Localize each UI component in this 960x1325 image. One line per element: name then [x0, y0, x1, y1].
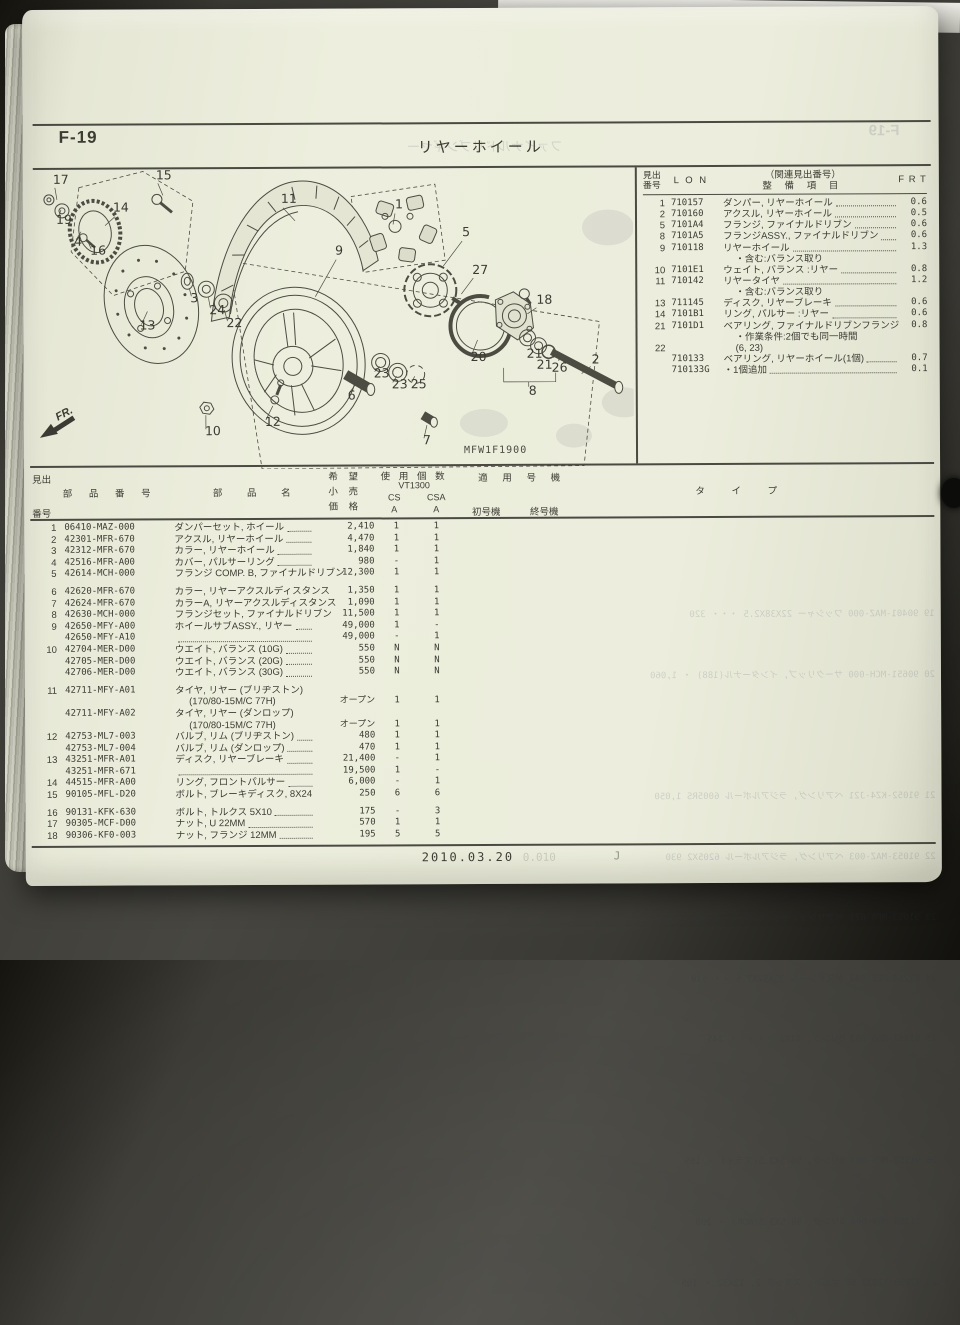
- parts-row-price: 49,000: [315, 620, 375, 632]
- service-row-frt: [900, 331, 928, 342]
- parts-row-price: 2,410: [314, 521, 374, 533]
- parts-header-cs: CS: [374, 492, 414, 502]
- dotted-leader: [279, 719, 312, 729]
- parts-row-no: 17: [34, 819, 58, 831]
- service-row-item: (6, 23): [724, 343, 764, 354]
- parts-row-qty-csa: 1: [418, 556, 454, 568]
- service-row-no: 8: [643, 232, 665, 243]
- service-row-no: [643, 254, 665, 265]
- diagram-callout-number: 6: [348, 388, 356, 403]
- diagram-callout-number: 17: [53, 172, 69, 187]
- service-row-item: ・作業条件:2個でも同一時間: [724, 331, 858, 343]
- parts-row-no: [33, 720, 57, 732]
- parts-row-partno: [57, 697, 175, 709]
- diagram-callout-number: 16: [90, 243, 106, 258]
- bleedthrough-line: [585, 728, 935, 745]
- parts-row-partno: 90105-MFL-D20: [57, 789, 175, 801]
- parts-row-qty-cs: 1: [375, 742, 419, 754]
- service-row-item: ・1個追加: [724, 365, 767, 376]
- service-row-item: アクスル, リヤーホイール: [723, 209, 832, 221]
- bleedthrough-line: [587, 1093, 937, 1110]
- parts-row-price: 19,500: [315, 765, 375, 777]
- dotted-leader: [279, 830, 312, 840]
- parts-row-qty-cs: 1: [375, 608, 419, 620]
- parts-row-price: 4,470: [314, 533, 374, 545]
- parts-row-price: 980: [314, 556, 374, 568]
- service-row-lon: [665, 287, 723, 298]
- parts-row-partno: 42706-MER-D00: [57, 667, 175, 679]
- parts-row-price: [315, 684, 375, 696]
- parts-header-price1: 希 望: [324, 469, 366, 483]
- diagram-callout-number: 3: [190, 290, 198, 305]
- parts-row-partno: 42650-MFY-A00: [57, 621, 175, 633]
- parts-row-qty-csa: 1: [419, 597, 455, 609]
- parts-header-no2: 番号: [32, 506, 62, 520]
- parts-header-no1: 見出: [32, 472, 62, 486]
- parts-row-no: 6: [33, 587, 57, 599]
- service-row-frt: 0.1: [900, 364, 928, 375]
- parts-row-qty-cs: 1: [375, 719, 419, 731]
- service-row-item: リヤータイヤ: [723, 276, 780, 287]
- parts-row-qty-cs: 6: [375, 788, 419, 800]
- diagram-callout-number: 15: [156, 167, 172, 182]
- parts-row-name: バルブ, リム (ブリヂストン): [175, 731, 294, 743]
- diagram-bleedthrough-shapes: [459, 209, 634, 448]
- parts-row-price: 250: [315, 789, 375, 801]
- dotted-leader: [288, 777, 312, 787]
- service-row-lon: 711145: [665, 298, 723, 309]
- parts-row-price: 195: [316, 829, 376, 841]
- service-row-frt: [900, 342, 928, 353]
- service-row-lon: 710118: [665, 243, 723, 254]
- service-row-frt: 1.3: [899, 242, 927, 253]
- parts-row-qty-cs: 1: [374, 544, 418, 556]
- parts-row-qty-csa: -: [419, 620, 455, 632]
- dotted-leader: [248, 818, 312, 828]
- parts-row-partno: 42711-MFY-A02: [57, 708, 175, 720]
- parts-row-partno: 42630-MCH-000: [57, 609, 175, 621]
- dotted-leader: [783, 275, 896, 285]
- parts-row-qty-cs: -: [375, 754, 419, 766]
- parts-row-qty-csa: 1: [419, 753, 455, 765]
- dotted-leader: [867, 353, 897, 362]
- parts-row-price: 480: [315, 731, 375, 743]
- parts-row-name: ウエイト, バランス (30G): [175, 667, 283, 679]
- footer-bleedthrough-j: J: [614, 849, 621, 862]
- parts-row-name: カラーA, リヤーアクスルディスタンス: [175, 597, 337, 609]
- parts-row-price: 11,500: [315, 609, 375, 621]
- parts-row-qty-csa: 1: [419, 608, 455, 620]
- parts-row-partno: 90131-KFK-630: [58, 807, 176, 819]
- service-row-lon: 7101D1: [665, 320, 723, 331]
- parts-row-qty-csa: 5: [420, 829, 456, 841]
- bleedthrough-line: 26 91358-MB9-003 Oリング, 50.5X3.5(アライ) ・ 1…: [587, 1154, 937, 1171]
- parts-row-qty-cs: 5: [376, 829, 420, 841]
- parts-row-qty-cs: [375, 684, 419, 696]
- service-row-frt: [899, 286, 927, 297]
- diagram-callout-number: 20: [471, 349, 487, 364]
- bleedthrough-line: 20 90651-MCH-000 サークリップ, インターナル(188) ・ 1…: [585, 668, 935, 685]
- dotted-leader: [306, 684, 312, 694]
- parts-row-name: (170/80-15M/C 77H): [175, 719, 276, 731]
- parts-row-no: [33, 633, 57, 645]
- dotted-leader: [286, 655, 312, 665]
- service-row-no: [644, 354, 666, 365]
- parts-row-qty-csa: 1: [419, 730, 455, 742]
- bleedthrough-line: 23 91053-MFR-671 ベアリング, ラジアルボール 60/28 1,…: [586, 911, 936, 928]
- footer-bleedthrough: 0.010: [523, 851, 556, 864]
- parts-row-name: ホイールサブASSY., リヤー: [175, 621, 293, 633]
- dotted-leader: [832, 309, 896, 318]
- parts-row-price: 550: [315, 667, 375, 679]
- diagram-callout-number: 2: [592, 351, 600, 366]
- parts-row-partno: 42620-MFR-670: [57, 586, 175, 598]
- parts-row-qty-csa: [419, 707, 455, 719]
- parts-header-model: VT1300: [370, 480, 458, 490]
- parts-row-qty-cs: 1: [375, 765, 419, 777]
- service-row-item: ・含む:バランス取り: [723, 253, 823, 265]
- parts-header-a2: A: [416, 504, 456, 514]
- service-row-frt: 0.6: [899, 297, 927, 308]
- dotted-leader: [836, 197, 896, 206]
- parts-row-price: 570: [316, 818, 376, 830]
- diagram-callout-number: 21: [537, 357, 553, 372]
- parts-row-qty-cs: -: [375, 632, 419, 644]
- service-row-lon: [666, 332, 724, 343]
- parts-row-partno: 06410-MAZ-000: [56, 522, 174, 534]
- parts-row-partno: 90306-KF0-003: [58, 830, 176, 842]
- service-row-frt: 1.2: [899, 275, 927, 286]
- parts-row-price: 12,300: [315, 568, 375, 580]
- dotted-leader: [793, 242, 897, 252]
- parts-row-partno: 42753-ML7-003: [57, 731, 175, 743]
- parts-row-name: バルブ, リム (ダンロップ): [175, 743, 284, 755]
- diagram-callout-number: 26: [552, 360, 568, 375]
- diagram-callout-number: 9: [335, 243, 343, 258]
- dotted-leader: [835, 297, 896, 306]
- service-row: 710133G ・1個追加 0.1: [644, 364, 928, 376]
- service-row-lon: 7101E1: [665, 265, 723, 276]
- service-row-frt: 0.6: [899, 308, 927, 319]
- parts-row-price: 470: [315, 742, 375, 754]
- service-row-frt: 0.8: [899, 320, 927, 331]
- diagram-callout-number: 11: [281, 191, 297, 206]
- bleedthrough-line: 91358-MB9-004 Oリング, 50.5X3.5(NOK) ・ 200: [587, 1215, 937, 1232]
- dotted-leader: [297, 731, 312, 741]
- dotted-leader: [278, 545, 312, 555]
- service-row-lon: 7101A5: [665, 231, 723, 242]
- dotted-leader: [855, 219, 896, 228]
- service-row-frt: 0.8: [899, 264, 927, 275]
- dotted-leader: [287, 754, 312, 764]
- dotted-leader: [841, 264, 896, 273]
- parts-row-name: フランジセット, ファイナルドリブン: [175, 609, 332, 621]
- service-table-header: 見出 番号 L O N （関連見出番号） 整 備 項 目 F R T: [643, 169, 927, 195]
- dotted-leader: [286, 644, 312, 654]
- parts-row-qty-csa: 3: [420, 806, 456, 818]
- diagram-callout-number: 12: [265, 414, 281, 429]
- service-header-frt: F R T: [893, 169, 927, 185]
- parts-row-partno: 42624-MFR-670: [57, 598, 175, 610]
- dotted-leader: [835, 208, 896, 217]
- service-row-no: 5: [643, 220, 665, 231]
- dotted-leader: [286, 667, 312, 677]
- dotted-leader: [178, 766, 312, 776]
- parts-header-apply: 適 用 号 機: [460, 470, 584, 485]
- parts-row-qty-csa: 1: [420, 817, 456, 829]
- parts-row-partno: 42301-MFR-670: [56, 534, 174, 546]
- diagram-linework: FR. MFW1F1900 17151941614111952718324221…: [39, 167, 634, 470]
- bleedthrough-line: 22 91053-MAZ-003 ベアリング, ラジアルボール 6205X2 9…: [586, 850, 936, 867]
- service-row-lon: 710133G: [666, 365, 724, 376]
- service-row-no: 10: [643, 265, 665, 276]
- service-row-frt: 0.7: [900, 353, 928, 364]
- parts-header-name: 部 品 名: [182, 485, 332, 500]
- service-row-item: フランジASSY., ファイナルドリブン: [723, 231, 878, 243]
- dotted-leader: [766, 342, 897, 352]
- parts-row-price: 1,840: [314, 545, 374, 557]
- parts-row-qty-csa: 1: [419, 631, 455, 643]
- parts-row-qty-csa: 1: [419, 695, 455, 707]
- service-row-lon: 7101B1: [665, 309, 723, 320]
- service-row-no: 9: [643, 243, 665, 254]
- header-top-rule: [33, 120, 931, 126]
- dotted-leader: [278, 557, 312, 567]
- parts-row-no: 5: [33, 569, 57, 581]
- parts-row-qty-cs: 1: [376, 818, 420, 830]
- diagram-callout-number: 4: [74, 234, 82, 249]
- parts-row-qty-csa: 1: [418, 533, 454, 545]
- parts-row-price: オープン: [315, 696, 375, 708]
- parts-row-no: 8: [33, 610, 57, 622]
- service-row-no: 13: [643, 298, 665, 309]
- parts-row-no: 9: [33, 622, 57, 634]
- dotted-leader: [297, 708, 313, 718]
- parts-row-partno: 42312-MFR-670: [56, 546, 174, 558]
- parts-row-name: リング, フロントパルサー: [175, 777, 285, 789]
- parts-row-name: アクスル, リヤーホイール: [174, 533, 283, 545]
- service-row-item: ベアリング, ファイナルドリブンフランジ: [723, 320, 899, 332]
- dotted-leader: [279, 696, 312, 706]
- page-title: リヤーホイール: [23, 134, 939, 159]
- service-row-frt: 0.6: [899, 219, 927, 230]
- service-row-frt: [899, 253, 927, 264]
- exploded-parts-diagram: FR. MFW1F1900 17151941614111952718324221…: [33, 167, 634, 470]
- parts-row-qty-csa: N: [419, 666, 455, 678]
- parts-row-no: [33, 668, 57, 680]
- dotted-leader: [288, 742, 313, 752]
- parts-row-qty-csa: N: [419, 643, 455, 655]
- driven-flange-shape: [404, 264, 461, 316]
- parts-row-partno: 42705-MER-D00: [57, 656, 175, 668]
- service-row-lon: [666, 343, 724, 354]
- diagram-callout-number: 13: [139, 317, 155, 332]
- parts-row-name: ディスク, リヤーブレーキ: [175, 754, 284, 766]
- service-row-lon: 710157: [665, 198, 723, 209]
- parts-row-qty-cs: 1: [375, 597, 419, 609]
- diagram-callout-number: 25: [411, 376, 427, 391]
- service-row-no: 2: [643, 209, 665, 220]
- parts-row-name: ナット, U 22MM: [176, 818, 246, 830]
- parts-header-partno: 部 品 番 号: [54, 485, 166, 499]
- parts-row-qty-cs: N: [375, 643, 419, 655]
- parts-row-qty-csa: 1: [418, 544, 454, 556]
- service-row-no: [644, 332, 666, 343]
- service-row-lon: 710133: [666, 354, 724, 365]
- service-row-lon: 7101A4: [665, 220, 723, 231]
- parts-row-name: ウエイト, バランス (20G): [175, 655, 283, 667]
- service-row-no: 22: [644, 343, 666, 354]
- dotted-leader: [770, 364, 897, 374]
- parts-row-price: 1,350: [315, 585, 375, 597]
- parts-row-qty-cs: N: [375, 666, 419, 678]
- parts-row-qty-cs: 1: [374, 521, 418, 533]
- bleedthrough-line: 21 91052-KZ4-J21 ベアリング, ラジアルボール 6005RS 1…: [586, 789, 936, 806]
- diagram-code: MFW1F1900: [464, 445, 527, 456]
- parts-row-price: 550: [315, 643, 375, 655]
- service-row-lon: 710142: [665, 276, 723, 287]
- dotted-leader: [286, 533, 311, 543]
- parts-row-partno: 42614-MCH-000: [57, 569, 175, 581]
- parts-row-partno: 42516-MFR-A00: [56, 557, 174, 569]
- parts-row-no: 16: [34, 808, 58, 820]
- parts-row-no: [33, 767, 57, 779]
- wheel-rim-shape: [216, 273, 380, 449]
- parts-row-name: タイヤ, リヤー (ダンロップ): [175, 708, 294, 720]
- parts-row-price: 1,090: [315, 597, 375, 609]
- parts-row-partno: [57, 720, 175, 732]
- parts-row-name: カラー, リヤーホイール: [174, 545, 274, 557]
- parts-row-qty-csa: N: [419, 655, 455, 667]
- parts-row-name: ボルト, ブレーキディスク, 8X24: [175, 789, 312, 801]
- parts-row-qty-cs: -: [376, 806, 420, 818]
- parts-row-name: ウエイト, バランス (10G): [175, 644, 283, 656]
- parts-header-price2: 小 売: [324, 484, 366, 498]
- parts-row-qty-csa: 1: [418, 521, 454, 533]
- parts-row-no: [33, 697, 57, 709]
- diagram-callout-number: 23: [374, 365, 390, 380]
- dotted-leader: [275, 806, 313, 816]
- parts-row-name: ボルト, トルクス 5X10: [176, 807, 272, 819]
- diagram-callout-number: 27: [472, 262, 488, 277]
- parts-row-price: 175: [316, 806, 376, 818]
- service-row-no: [643, 287, 665, 298]
- parts-row-qty-csa: [419, 684, 455, 696]
- parts-row-qty-cs: N: [375, 655, 419, 667]
- parts-row-no: 12: [33, 732, 57, 744]
- service-header-lon: L O N: [669, 170, 713, 186]
- parts-row-no: 14: [33, 778, 57, 790]
- parts-row-no: 18: [34, 831, 58, 843]
- diagram-callout-number: 8: [529, 383, 537, 398]
- parts-bleedthrough-block: 19 90401-MAZ-000 ワッシャー 22X38X2.5 ・・・ 320…: [584, 546, 935, 818]
- dotted-leader: [881, 231, 896, 240]
- service-header-no: 見出 番号: [643, 170, 669, 190]
- diagram-callout-number: 19: [56, 212, 72, 227]
- service-row-no: 14: [643, 310, 665, 321]
- binder-notch-shadow: [941, 478, 960, 508]
- parts-row-price: [315, 707, 375, 719]
- parts-header-type: タ イ プ: [672, 483, 812, 498]
- service-row-no: 11: [643, 276, 665, 287]
- parts-row-partno: 42753-ML7-004: [57, 743, 175, 755]
- diagram-callout-number: 10: [205, 423, 221, 438]
- service-row-frt: 0.5: [899, 208, 927, 219]
- parts-row-price: 49,000: [315, 632, 375, 644]
- parts-row-qty-cs: [375, 707, 419, 719]
- parts-row-no: 11: [33, 686, 57, 698]
- parts-row-name: カバー, パルサーリング: [174, 557, 274, 569]
- parts-row-name: (170/80-15M/C 77H): [175, 696, 276, 708]
- parts-row-qty-csa: 1: [419, 567, 455, 579]
- catalog-page: F-19 ファイナルドリブンギヤー F-19 リヤーホイール: [22, 6, 942, 886]
- parts-row-partno: 44515-MFR-A00: [57, 778, 175, 790]
- parts-row-name: ダンパーセット, ホイール: [174, 522, 284, 534]
- parts-row-partno: 42711-MFY-A01: [57, 685, 175, 697]
- bleedthrough-line: 25 91302-MA6-003 Oリング, 61X2 ・・・・・ 245: [587, 1032, 937, 1049]
- parts-table-header: 見出 番号 部 品 番 号 部 品 名 希 望 小 売 価 格 使 用 個 数 …: [32, 466, 932, 520]
- parts-row-qty-cs: 1: [375, 730, 419, 742]
- parts-row-price: 21,400: [315, 754, 375, 766]
- parts-row-no: 13: [33, 755, 57, 767]
- dotted-leader: [826, 286, 896, 295]
- parts-row-qty-csa: 1: [419, 719, 455, 731]
- parts-row-partno: 43251-MFR-671: [57, 766, 175, 778]
- diagram-callout-number: 1: [395, 196, 403, 211]
- parts-row-no: [33, 744, 57, 756]
- bleedthrough-line: 19 90401-MAZ-000 ワッシャー 22X38X2.5 ・・・ 320: [585, 607, 935, 624]
- diagram-callout-number: 14: [113, 200, 129, 215]
- dotted-leader: [178, 632, 312, 642]
- damper-set-shape: [369, 195, 438, 263]
- parts-row-partno: 42704-MER-D00: [57, 644, 175, 656]
- service-row-lon: [665, 254, 723, 265]
- parts-header-price3: 価 格: [324, 499, 366, 513]
- parts-row-no: 10: [33, 645, 57, 657]
- service-row-frt: 0.6: [899, 230, 927, 241]
- parts-row-no: 2: [32, 534, 56, 546]
- parts-row-price: オープン: [315, 719, 375, 731]
- parts-row-qty-cs: -: [375, 777, 419, 789]
- dotted-leader: [287, 522, 311, 532]
- parts-row-no: [33, 656, 57, 668]
- parts-row-qty-csa: 1: [419, 777, 455, 789]
- parts-row-no: 7: [33, 598, 57, 610]
- parts-row-qty-cs: 1: [375, 620, 419, 632]
- diagram-callout-number: 18: [536, 292, 552, 307]
- parts-row-no: 4: [32, 558, 56, 570]
- dotted-leader: [295, 620, 311, 630]
- parts-row-qty-cs: 1: [375, 696, 419, 708]
- parts-row-qty-cs: 1: [375, 568, 419, 580]
- parts-row-no: [33, 709, 57, 721]
- parts-row-price: 550: [315, 655, 375, 667]
- parts-row-partno: 42650-MFY-A10: [57, 633, 175, 645]
- diagram-callout-number: 5: [462, 224, 470, 239]
- parts-row-partno: 90305-MCF-D00: [58, 819, 176, 831]
- bleedthrough-line: 27 92900-12032-0E ボルト, スタッド 2, 12X32 ・ 1…: [588, 1276, 938, 1293]
- diagram-callout-number: 22: [226, 315, 242, 330]
- parts-header-csa: CSA: [416, 492, 456, 502]
- service-row-item: リング, パルサー :リヤー: [723, 309, 829, 321]
- parts-row-qty-csa: 1: [419, 742, 455, 754]
- service-row-no: [644, 365, 666, 376]
- parts-row-qty-cs: 1: [375, 585, 419, 597]
- service-time-table: 見出 番号 L O N （関連見出番号） 整 備 項 目 F R T 1 710…: [635, 166, 930, 463]
- parts-row-no: 1: [32, 523, 56, 535]
- service-row-item: ウェイト, バランス :リヤー: [723, 264, 838, 276]
- diagram-callout-number: 7: [423, 432, 431, 447]
